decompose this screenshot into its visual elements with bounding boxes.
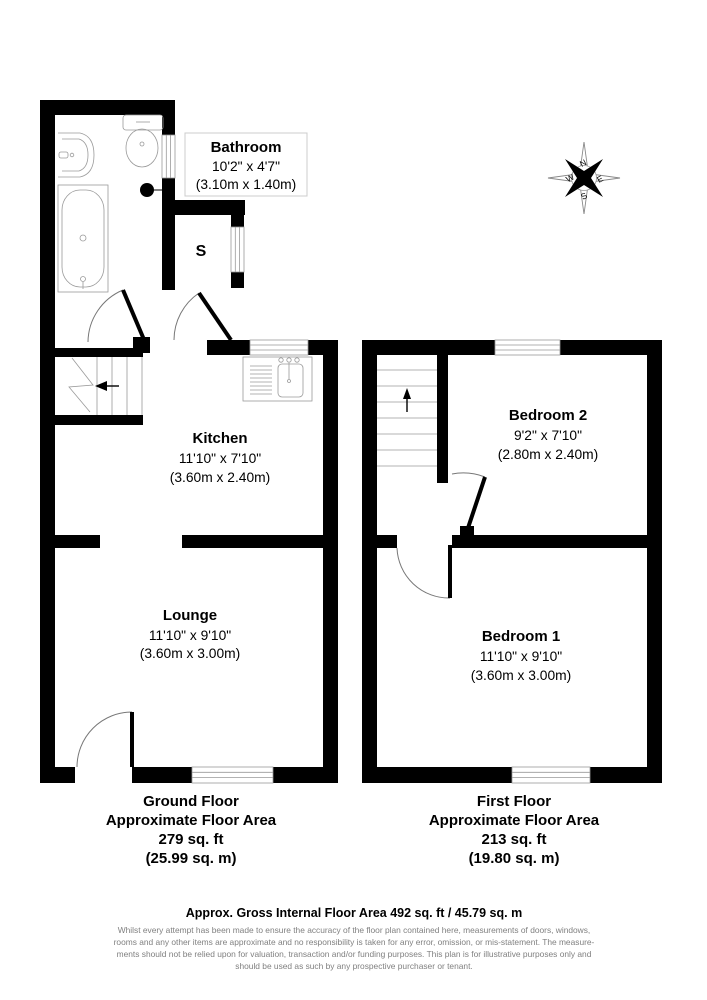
- stair-direction-arrow: [403, 388, 411, 412]
- bedroom2-metric: (2.80m x 2.40m): [498, 447, 598, 462]
- ground-floor-doors: [77, 290, 231, 767]
- first-floor-plan: Bedroom 2 9'2" x 7'10" (2.80m x 2.40m) B…: [362, 340, 662, 867]
- bedroom1-imperial: 11'10" x 9'10": [480, 649, 562, 664]
- floorplan-page: Bathroom 10'2" x 4'7" (3.10m x 1.40m) S …: [0, 0, 707, 1000]
- compass-label-south: S: [579, 190, 589, 202]
- wall-bathroom-right-lower: [162, 178, 175, 290]
- first-floor-summary: First Floor Approximate Floor Area 213 s…: [429, 793, 600, 867]
- kitchen-sink-unit: [243, 357, 312, 401]
- stair-break-line: [69, 358, 93, 412]
- ground-floor-area-sqft: 279 sq. ft: [158, 831, 223, 848]
- wall-divider-left: [377, 535, 397, 548]
- drainer: [250, 366, 272, 394]
- bedroom1-door: [397, 545, 450, 598]
- wall-divider-left: [55, 535, 100, 548]
- ground-floor-plan: Bathroom 10'2" x 4'7" (3.10m x 1.40m) S …: [40, 100, 338, 867]
- kitchen-imperial: 11'10" x 7'10": [179, 451, 261, 466]
- store-window: [231, 227, 244, 272]
- wall-top-left: [362, 340, 495, 355]
- disclaimer-line-1: Whilst every attempt has been made to en…: [118, 925, 591, 935]
- sink-bowl: [278, 358, 303, 397]
- front-door: [77, 712, 132, 767]
- wall-bathroom-right-upper: [162, 115, 175, 135]
- compass-center-dot: [580, 174, 588, 182]
- ground-floor-area-sqm: (25.99 sq. m): [146, 850, 237, 867]
- bedroom1-name: Bedroom 1: [482, 628, 560, 645]
- bedroom2-imperial: 9'2" x 7'10": [514, 428, 582, 443]
- wall-stairs-bottom: [55, 415, 143, 425]
- bathroom-metric: (3.10m x 1.40m): [196, 177, 296, 192]
- wall-top-right: [560, 340, 662, 355]
- wall-bottom-left: [362, 767, 512, 783]
- wall-divider-right: [182, 535, 338, 548]
- wall-bottom-mid: [132, 767, 192, 783]
- wall-bathroom-top: [40, 100, 175, 115]
- wall-store-right-upper: [231, 215, 244, 227]
- bathroom-name: Bathroom: [211, 139, 282, 156]
- bathtub: [58, 185, 108, 292]
- bedroom2-window: [495, 340, 560, 355]
- staircase-ground: [69, 357, 142, 415]
- footer: Approx. Gross Internal Floor Area 492 sq…: [114, 906, 595, 971]
- toilet: [123, 115, 163, 167]
- ground-floor-name: Ground Floor: [143, 793, 239, 810]
- bedroom2-name: Bedroom 2: [509, 407, 587, 424]
- wall-bathroom-door-post: [133, 337, 150, 353]
- floorplan-canvas: Bathroom 10'2" x 4'7" (3.10m x 1.40m) S …: [0, 0, 707, 1000]
- wall-store-top: [175, 200, 245, 215]
- compass-rose: N S W E: [548, 142, 620, 214]
- wall-bottom-right: [590, 767, 662, 783]
- disclaimer-line-2: rooms and any other items are approximat…: [114, 937, 595, 947]
- wall-stairs-right: [437, 355, 448, 483]
- store-door: [174, 293, 231, 340]
- kitchen-window: [250, 340, 308, 355]
- first-floor-area-sqm: (19.80 sq. m): [469, 850, 560, 867]
- bathroom-imperial: 10'2" x 4'7": [212, 159, 280, 174]
- kitchen-name: Kitchen: [192, 430, 247, 447]
- stair-direction-arrow: [95, 381, 119, 391]
- wall-divider-right: [452, 535, 662, 548]
- bathroom-door: [88, 290, 145, 342]
- lounge-imperial: 11'10" x 9'10": [149, 628, 231, 643]
- wall-stairs-top: [55, 348, 143, 357]
- bathroom-sink: [58, 133, 94, 177]
- gross-area-title: Approx. Gross Internal Floor Area 492 sq…: [186, 906, 522, 920]
- ground-floor-summary: Ground Floor Approximate Floor Area 279 …: [106, 793, 277, 867]
- wall-right: [323, 340, 338, 783]
- boiler-dot: [140, 183, 162, 197]
- wall-store-right-lower: [231, 272, 244, 288]
- wall-kitchen-top-left: [207, 340, 250, 355]
- kitchen-metric: (3.60m x 2.40m): [170, 470, 270, 485]
- wall-right: [647, 340, 662, 783]
- staircase-first: [377, 370, 437, 466]
- wall-bottom-right: [273, 767, 338, 783]
- first-floor-area-sqft: 213 sq. ft: [481, 831, 546, 848]
- bedroom1-metric: (3.60m x 3.00m): [471, 668, 571, 683]
- bedroom1-window: [512, 767, 590, 783]
- store-label: S: [196, 243, 207, 260]
- lounge-window: [192, 767, 273, 783]
- first-floor-area-label: Approximate Floor Area: [429, 812, 600, 829]
- wall-left: [362, 340, 377, 783]
- lounge-name: Lounge: [163, 607, 217, 624]
- ground-floor-area-label: Approximate Floor Area: [106, 812, 277, 829]
- disclaimer-line-4: should be used as such by any prospectiv…: [235, 961, 472, 971]
- first-floor-name: First Floor: [477, 793, 551, 810]
- lounge-metric: (3.60m x 3.00m): [140, 646, 240, 661]
- bedroom2-door: [452, 473, 485, 534]
- disclaimer-line-3: ments should not be relied upon for valu…: [117, 949, 592, 959]
- wall-bottom-left: [40, 767, 75, 783]
- ground-floor-walls: [40, 100, 338, 783]
- bathroom-fixtures: [58, 115, 163, 292]
- wall-left: [40, 100, 55, 783]
- bathroom-window: [162, 135, 175, 178]
